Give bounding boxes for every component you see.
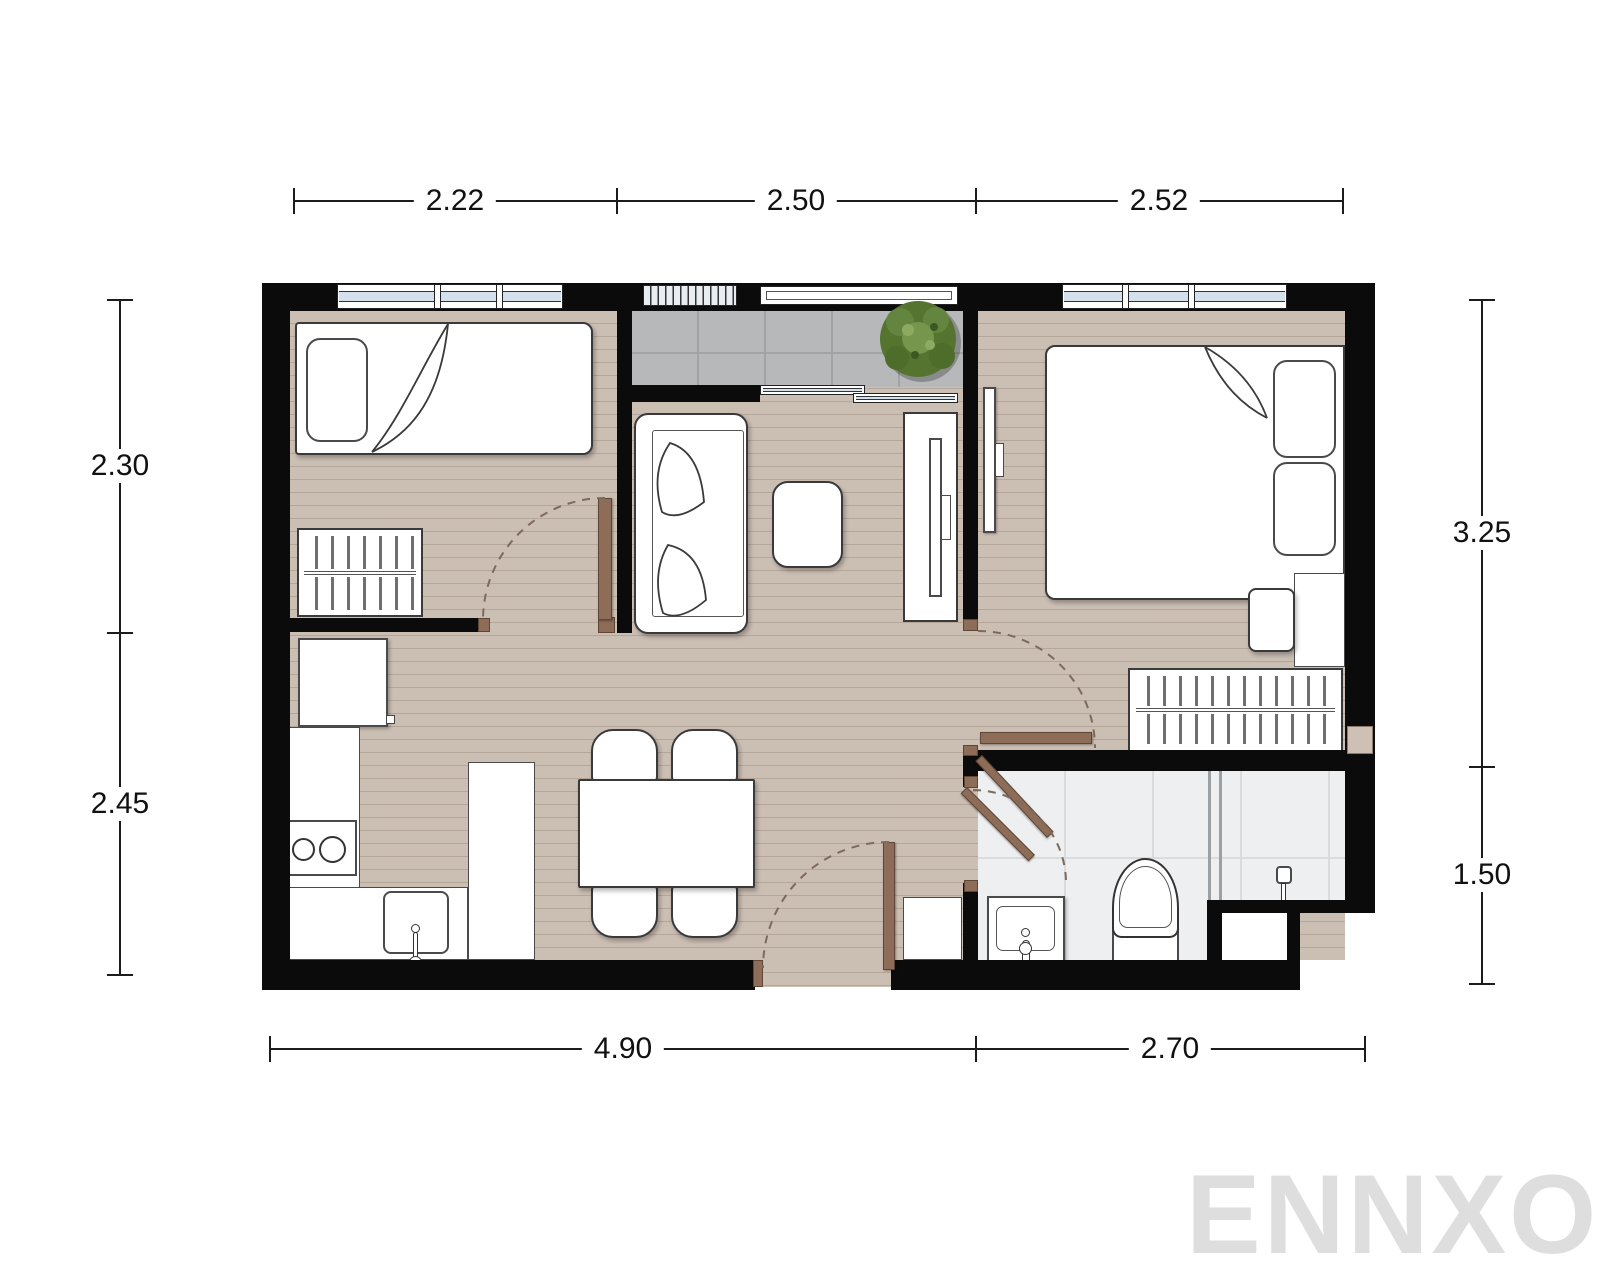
wardrobe-hangers [1136,714,1335,744]
wall-left [262,283,290,990]
wall-bathroom-left-lower [963,883,978,990]
wall-bathroom-step [1207,900,1375,913]
wardrobe-hangers [304,577,416,610]
dining-table [578,779,755,888]
door-jamb [964,880,978,892]
window-mullion [434,284,441,309]
basin-drain-icon [1021,928,1030,937]
entrance-door-leaf [883,842,895,970]
bedroom2-door-leaf [598,498,612,620]
watermark-logo: ENNXO [1186,1150,1599,1279]
dim-label-top-1: 2.22 [414,184,496,218]
wall-bedroom2-right [617,283,632,633]
sliding-door-glazing [763,388,862,392]
dim-label-right-2: 1.50 [1441,858,1523,892]
window-glazing [1064,291,1285,302]
shaft-patch [1347,726,1373,754]
floor-plan-canvas: 2.22 2.50 2.52 4.90 2.70 2.30 2.45 3.25 … [0,0,1600,1280]
dining-chair [671,884,738,938]
dresser-cabinet [1294,573,1345,667]
dim-tick [975,188,977,214]
door-jamb [753,960,763,987]
dining-chair [671,729,738,783]
dim-label-top-2: 2.50 [755,184,837,218]
washer-nook [903,897,962,960]
sofa-seat [652,430,744,617]
window-mullion [1122,284,1129,309]
wall-bathroom-top [978,750,1375,771]
dim-label-right-1: 3.25 [1441,516,1523,550]
coffee-table [772,481,843,568]
refrigerator [298,638,388,727]
shower-head [1276,866,1292,884]
window-mullion [1188,284,1195,309]
window-glazing [339,291,561,302]
dim-label-top-3: 2.52 [1118,184,1200,218]
door-jamb [963,745,978,756]
dim-tick [1469,983,1495,985]
wall-bedroom1-left [963,283,978,630]
window-mullion [496,284,503,309]
wall-bottom [891,960,1300,990]
wardrobe-rod [1136,708,1335,712]
wardrobe-hangers [1136,676,1335,706]
dim-label-left-2: 2.45 [79,787,161,821]
dim-tick [107,299,133,301]
wall-niche-left [1207,900,1222,990]
dim-tick [293,188,295,214]
bed-pillow [306,338,368,442]
dim-tick [616,188,618,214]
dim-tick [107,974,133,976]
burner-icon [292,838,315,861]
dim-label-bottom-2: 2.70 [1129,1032,1211,1066]
dim-tick [975,1036,977,1062]
tv-stand [941,495,951,540]
floor-balcony [632,311,963,387]
basin-faucet-icon [1019,942,1032,955]
wardrobe-rod [304,571,416,575]
wall-niche-right [1287,913,1300,990]
kitchen-counter-peninsula [468,762,535,960]
dim-label-bottom-1: 4.90 [582,1032,664,1066]
balcony-railing [643,285,737,306]
floor-entry-threshold [757,960,891,987]
dim-tick [1469,766,1495,768]
sliding-door-glazing [856,396,955,400]
dim-tick [1469,299,1495,301]
wall-balcony-bottom [617,385,760,402]
shower-glass-partition [1208,771,1211,900]
dim-tick [107,632,133,634]
dining-chair [591,729,658,783]
dimension-line-left [119,300,121,975]
wall-tv-mount [995,443,1004,477]
burner-icon [319,836,346,863]
bed-pillow [1273,360,1336,458]
wall-bottom [262,960,755,990]
dim-tick [269,1036,271,1062]
balcony-glass-panel [766,291,952,300]
door-jamb [963,619,978,631]
dim-label-left-1: 2.30 [79,449,161,483]
dim-tick [1364,1036,1366,1062]
dim-tick [1342,188,1344,214]
nightstand [1248,588,1295,652]
shower-glass-partition [1219,771,1222,900]
refrigerator-hinge [386,715,395,724]
wall-right [1345,283,1375,913]
service-niche [1222,913,1287,960]
dining-chair [591,884,658,938]
wall-bedroom2-bottom [278,618,480,632]
wardrobe-hangers [304,536,416,569]
bedroom1-door-leaf [980,732,1092,744]
bed-pillow [1273,462,1336,556]
door-jamb [478,618,490,632]
